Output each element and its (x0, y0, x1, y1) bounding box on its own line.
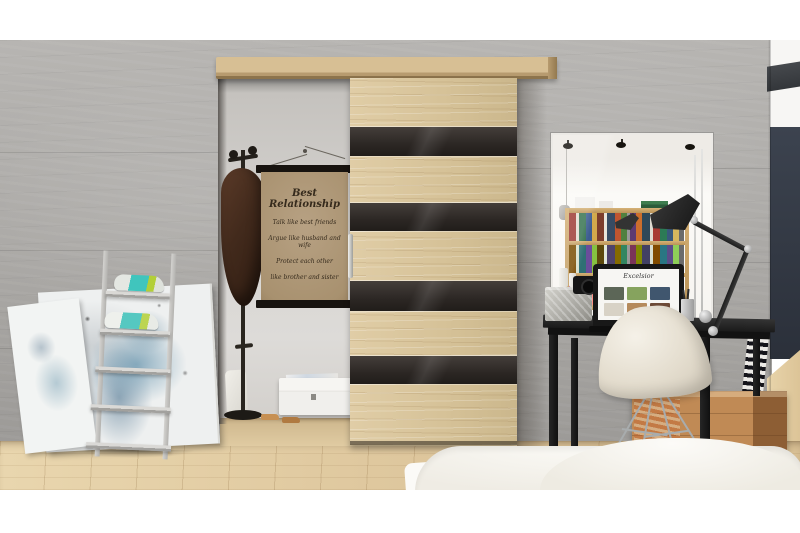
door-glass-stripe (350, 281, 517, 311)
poster-line: Argue like husband and wife (261, 235, 348, 249)
ceiling-beam (767, 61, 800, 91)
door-glass-stripe (350, 127, 517, 156)
thumbnail (604, 303, 624, 316)
ladder-shelf (95, 366, 170, 375)
wall-corner-shadow (768, 40, 771, 446)
top-white-band (0, 0, 800, 40)
sandal (282, 417, 300, 423)
sneaker (114, 274, 165, 292)
bench-latch (311, 394, 316, 400)
lamp-joint (744, 245, 752, 253)
ladder-rail (163, 253, 177, 459)
lamp-base-joint (708, 326, 718, 336)
coat-hook-knob (229, 150, 238, 159)
poster-line: Talk like best friends (261, 219, 348, 226)
thumbnail (627, 287, 647, 300)
desk-leg (571, 338, 578, 446)
door-bottom-edge (350, 441, 517, 445)
sliding-door-rail (216, 57, 557, 79)
laptop-screen-title: Excelsior (598, 272, 679, 280)
ladder-shelf (100, 328, 170, 337)
poster-bottom-bar (256, 300, 352, 308)
door-glass-stripe (350, 356, 517, 384)
poster-line: Protect each other (261, 258, 348, 265)
sandal (261, 414, 279, 420)
coat-hook-knob (248, 146, 257, 155)
bedroom-photo: Best Relationship Talk like best friends… (0, 0, 800, 533)
poster-line: like brother and sister (261, 274, 348, 281)
thumbnail (604, 287, 624, 300)
poster-nail (303, 149, 307, 153)
sliding-door (350, 78, 517, 445)
desk-leg (753, 334, 760, 396)
ladder-shoe-shelf (81, 250, 190, 462)
chrome-ball-lamp (699, 310, 712, 323)
rail-end-cap (548, 57, 557, 79)
door-shadow (517, 79, 547, 446)
coat-stand-base (224, 410, 262, 420)
door-handle (348, 234, 353, 278)
ladder-rail (95, 251, 109, 457)
bottom-white-band (0, 490, 800, 533)
poster-paper: Best Relationship Talk like best friends… (261, 172, 348, 301)
sneaker (104, 312, 159, 330)
ladder-shelf (91, 404, 171, 413)
desk-leg (549, 334, 558, 447)
wall-seam (0, 152, 218, 153)
candle (559, 268, 568, 287)
poster-title: Best Relationship (261, 188, 348, 210)
thumbnail (650, 287, 670, 300)
door-glass-stripe (350, 203, 517, 231)
